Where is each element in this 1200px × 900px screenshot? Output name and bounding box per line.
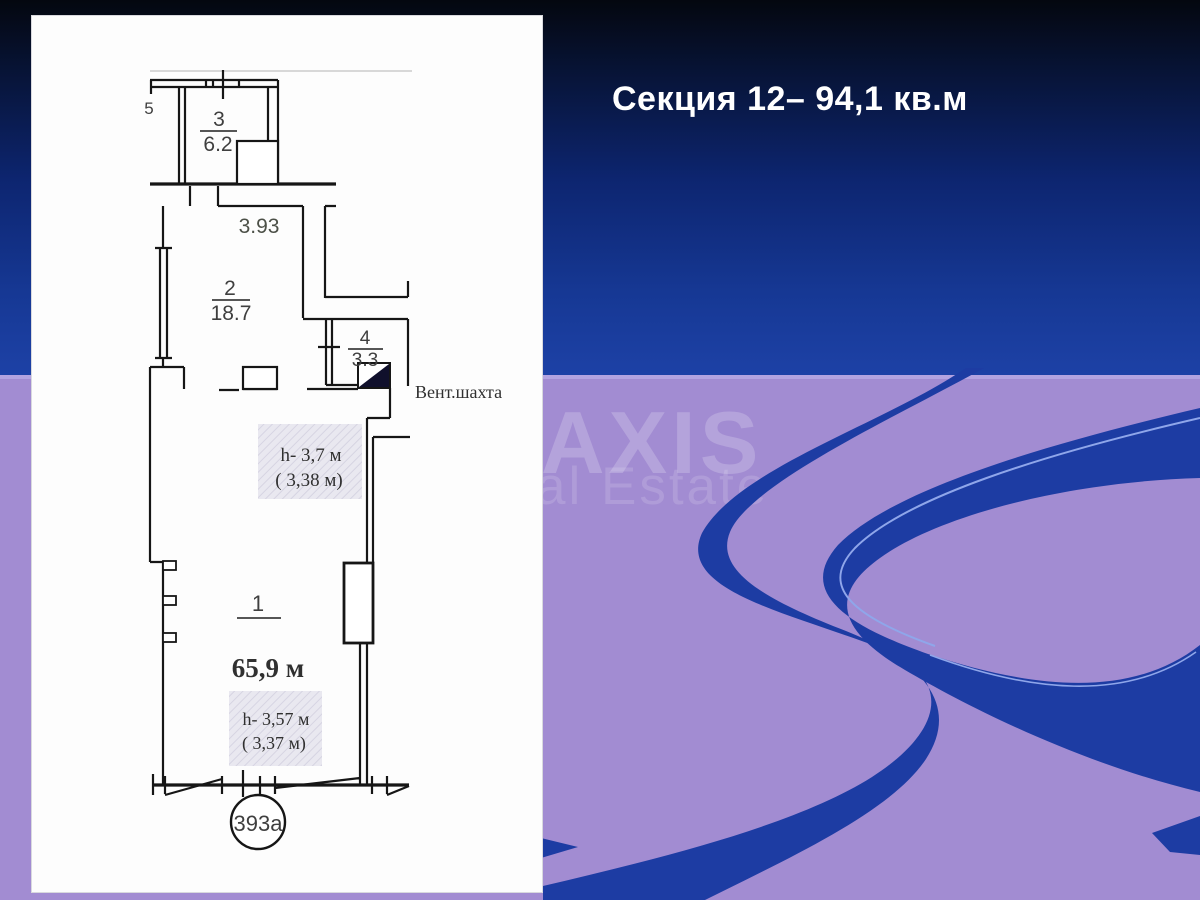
- slide-title: Секция 12– 94,1 кв.м: [612, 80, 1172, 119]
- wall-notch-1: [163, 561, 176, 570]
- column-pylon: [344, 563, 373, 643]
- height-note-upper-line2: ( 3,38 м): [275, 470, 342, 491]
- wall-notch-3: [163, 633, 176, 642]
- room3-area: 6.2: [203, 133, 232, 156]
- swoosh-ribbon-left: [543, 368, 984, 900]
- height-note-upper-line1: h- 3,7 м: [280, 445, 341, 466]
- room4-area: 3.3: [352, 350, 378, 371]
- room4-number: 4: [360, 328, 371, 349]
- room3-closet: [237, 141, 278, 184]
- vent-shaft-label: Вент.шахта: [415, 382, 502, 402]
- wall-notch-2: [163, 596, 176, 605]
- swoosh-panel-fragment: [541, 838, 578, 858]
- room2-number: 2: [224, 277, 236, 300]
- swoosh-ribbon-right: [823, 408, 1200, 792]
- room1-area: 65,9 м: [232, 653, 304, 683]
- unit-number-label: 393а: [234, 811, 284, 836]
- room-label-underlines: [200, 131, 383, 618]
- height-note-lower-line1: h- 3,57 м: [243, 709, 310, 729]
- floorplan-drawing: 5 3 6.2 3.93 2 18.7 4 3.3 Вент.шахта h- …: [31, 15, 543, 893]
- partial-dim-label: 5: [144, 99, 153, 118]
- wall-pier-box: [243, 367, 277, 389]
- room1-number: 1: [252, 591, 264, 616]
- slide: AXIS al Estate: [0, 0, 1200, 900]
- height-note-lower-line2: ( 3,37 м): [242, 733, 306, 754]
- room3-number: 3: [213, 108, 225, 131]
- room2-area: 18.7: [211, 302, 252, 325]
- swoosh-corner-fragment: [1152, 816, 1200, 855]
- top-dimension: 3.93: [239, 215, 280, 238]
